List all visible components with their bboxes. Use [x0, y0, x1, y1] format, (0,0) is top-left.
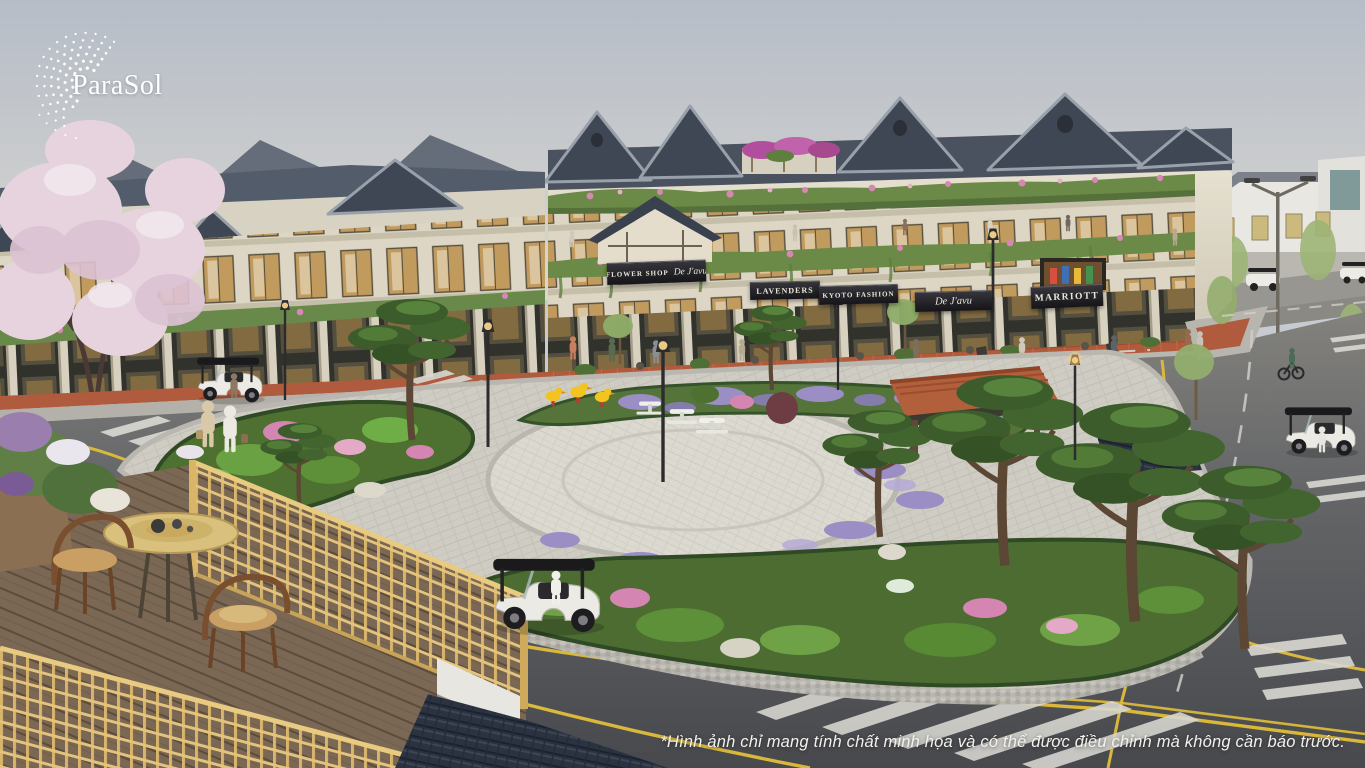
scene-illustration — [0, 0, 1365, 768]
shop-sign-marriott: MARRIOTT — [1031, 284, 1104, 309]
shop-sign-flower-shop: FLOWER SHOP De J'avu — [607, 260, 707, 285]
shop-sign-lavenders: LAVENDERS — [750, 281, 820, 300]
render-stage: ParaSol FLOWER SHOP De J'avu LAVENDERS K… — [0, 0, 1365, 768]
golf-cart-left — [197, 358, 265, 405]
rooftop-terrace-bougainvillea — [742, 137, 840, 174]
disclaimer-text: *Hình ảnh chỉ mang tính chất minh họa và… — [660, 733, 1345, 752]
flower-shop-brand: De J'avu — [674, 266, 707, 277]
golf-cart-right — [1285, 407, 1358, 458]
flower-shop-label: FLOWER SHOP — [607, 268, 669, 278]
golf-cart-foreground — [493, 559, 604, 636]
shop-sign-kyoto-fashion: KYOTO FASHION — [819, 284, 898, 305]
shop-sign-de-javu: De J'avu — [915, 290, 992, 312]
